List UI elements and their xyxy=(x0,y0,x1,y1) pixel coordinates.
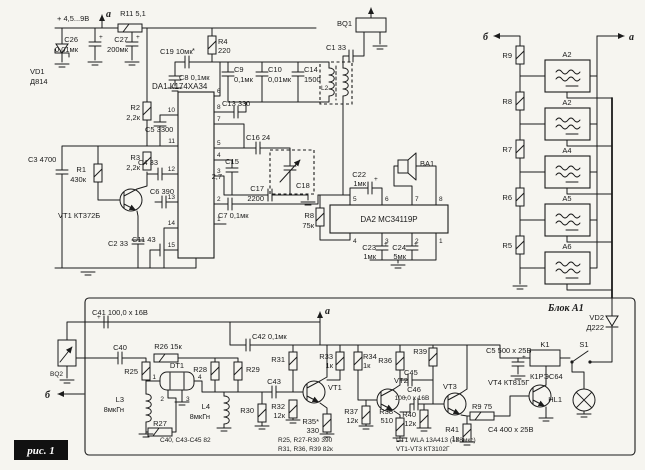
c45-label: C45 xyxy=(404,368,418,377)
r30-label: R30 xyxy=(240,406,254,415)
r32-label: R32 xyxy=(271,402,285,411)
c5-label: C5 3300 xyxy=(145,125,173,134)
r9-block-label: R9 75 xyxy=(472,402,492,411)
c17-label: C17 xyxy=(250,184,264,193)
c18-label: C18 xyxy=(296,181,310,190)
c23-label: C23 xyxy=(362,243,376,252)
c41-plus: + xyxy=(97,314,101,321)
vd1-value: Д814 xyxy=(30,77,48,86)
figure-caption: рис. 1 xyxy=(14,440,68,460)
r9-filter-label: R9 xyxy=(502,51,512,60)
l3-value: 8мкГн xyxy=(104,405,124,414)
note-res2: R31, R36, R39 82к xyxy=(278,446,333,453)
c46-label: C46 xyxy=(407,385,421,394)
filter-unit-a2b xyxy=(545,108,590,140)
bq2-label: BQ2 xyxy=(50,371,63,378)
c27-label: C27 xyxy=(114,35,128,44)
c14-value: 1500 xyxy=(304,75,321,84)
c9-value: 0,1мк xyxy=(234,75,254,84)
c16-label: C16 24 xyxy=(246,133,270,142)
da1-pin4: 4 xyxy=(217,152,221,159)
dt1-label: DT1 xyxy=(170,361,184,370)
r34-label: R34 xyxy=(363,352,377,361)
ba1-speaker-icon xyxy=(398,160,408,173)
c22-label: C22 xyxy=(352,170,366,179)
r25-label: R25 xyxy=(124,367,138,376)
vd2-value: Д222 xyxy=(586,323,604,332)
da2-pin5: 5 xyxy=(353,196,357,203)
r2-value: 2,2к xyxy=(126,113,140,122)
c3-label: C3 4700 xyxy=(28,155,56,164)
conn-a-label: а xyxy=(629,32,634,43)
c10-label: C10 xyxy=(268,65,282,74)
r37-label: R37 xyxy=(344,407,358,416)
r38-value: 510 xyxy=(380,416,393,425)
hl1-label: HL1 xyxy=(548,395,562,404)
l3-label: L3 xyxy=(116,395,124,404)
c15-label: C15 xyxy=(225,157,239,166)
da2-pin6: 6 xyxy=(385,196,389,203)
r32-value: 12к xyxy=(273,411,285,420)
c42-label: C42 0,1мк xyxy=(252,332,287,341)
r35-value: 330 xyxy=(306,426,319,435)
da1-pin5: 5 xyxy=(217,140,221,147)
da1-chip xyxy=(178,92,214,258)
c27-value: 200мк xyxy=(107,45,129,54)
c22-plus: + xyxy=(374,176,378,183)
k1-relay-icon xyxy=(530,350,560,366)
r5-filter-label: R5 xyxy=(502,241,512,250)
dt1-delay-line xyxy=(160,372,194,390)
caption-text: рис. 1 xyxy=(26,445,55,457)
da1-pin8: 8 xyxy=(217,104,221,111)
r37-value: 12к xyxy=(346,416,358,425)
r35-label: R35* xyxy=(302,417,319,426)
supply-label: + 4,5...9В xyxy=(57,14,89,23)
da1-pin7: 7 xyxy=(217,116,221,123)
filter-unit-a2 xyxy=(545,60,590,92)
l2-label: L2 xyxy=(321,85,329,92)
c4-label: C4 33 xyxy=(138,158,158,167)
relay-type-label: К1РЭС64 xyxy=(530,372,563,381)
da2-title: DA2 MC34119P xyxy=(360,215,417,224)
c5-plus: + xyxy=(522,354,526,361)
r8-filter-label: R8 xyxy=(502,97,512,106)
da1-pin2: 2 xyxy=(217,196,221,203)
r4-label: R4 xyxy=(218,37,228,46)
schematic-canvas: + 4,5...9В а R11 5,1 C26 0,01мк + C27 20… xyxy=(0,0,645,470)
dt1-pin1: 1 xyxy=(152,374,156,381)
vt1-block-label: VT1 xyxy=(328,383,342,392)
dt1-pin3: 3 xyxy=(186,396,190,403)
da2-pin7: 7 xyxy=(415,196,419,203)
l4-value: 8мкГн xyxy=(190,412,210,421)
r1-value: 430к xyxy=(70,175,87,184)
da1-title: DA1 К174ХА34 xyxy=(152,82,208,91)
r2-label: R2 xyxy=(130,103,140,112)
l4-label: L4 xyxy=(202,402,210,411)
c10-value: 0,01мк xyxy=(268,75,292,84)
r26-label: R26 15к xyxy=(154,342,182,351)
note-dt1: DT1 WLA 13A413 (128мкс) xyxy=(396,437,476,444)
filter-unit-a4 xyxy=(545,156,590,188)
vt2-label: VT2 xyxy=(394,376,408,385)
c13-label: C13 330 xyxy=(222,99,250,108)
filter-unit-a6 xyxy=(545,252,590,284)
c19-label: C19 10мк xyxy=(160,47,193,56)
da1-pin11: 11 xyxy=(168,138,175,145)
r6-filter-label: R6 xyxy=(502,193,512,202)
vt1-transistor xyxy=(120,189,142,211)
c11-label: C11 43 xyxy=(132,235,156,244)
vd2-diode-icon xyxy=(606,316,618,326)
c7-label: C7 0,1мк xyxy=(218,211,249,220)
r34-value: 1к xyxy=(363,361,371,370)
labels-top: + 4,5...9В а R11 5,1 C26 0,01мк + C27 20… xyxy=(28,9,443,261)
r28-label: R28 xyxy=(193,365,207,374)
hl1-lamp-icon xyxy=(573,389,595,411)
r29-label: R29 xyxy=(246,365,260,374)
filter-bank xyxy=(494,36,624,298)
vd1-label: VD1 xyxy=(30,67,45,76)
vt1-label: VT1 КТ372Б xyxy=(58,211,100,220)
r36-label: R36 xyxy=(378,356,392,365)
r41-label: R41 xyxy=(445,425,459,434)
da1-pin10: 10 xyxy=(168,107,176,114)
conn-a-top: а xyxy=(106,9,111,20)
c46-value: 100,0 x 16В xyxy=(395,395,430,402)
r31-label: R31 xyxy=(271,355,285,364)
r40-label: R40 xyxy=(402,410,416,419)
c2-label: C2 33 xyxy=(108,239,128,248)
c17-value: 2200 xyxy=(247,194,264,203)
c23-value: 1мк xyxy=(363,252,376,261)
vt3-transistor xyxy=(444,393,466,415)
bq1-earphone-icon xyxy=(356,18,386,32)
r8-top-value: 75к xyxy=(302,221,314,230)
s1-switch-blade-icon xyxy=(572,351,588,362)
a2b-label: А2 xyxy=(562,98,571,107)
c24-value: 5мк xyxy=(393,252,406,261)
r39-label: R39 xyxy=(413,347,427,356)
da1-pin6: 6 xyxy=(217,88,221,95)
s1-label: S1 xyxy=(579,340,588,349)
bq1-label: BQ1 xyxy=(337,19,352,28)
c26-value: 0,01мк xyxy=(55,45,79,54)
r27-label: R27 xyxy=(153,419,167,428)
vt1-block-transistor xyxy=(303,381,325,403)
vd2-label: VD2 xyxy=(589,313,604,322)
a5-label: А5 xyxy=(562,194,571,203)
c46-plus: + xyxy=(403,395,407,402)
note-res1: R25, R27-R30 390 xyxy=(278,437,333,444)
c6-label: C6 390 xyxy=(150,187,174,196)
conn-a-block-label: а xyxy=(325,306,330,317)
vt4-label: VT4 КТ815Г xyxy=(488,378,529,387)
conn-b-label: б xyxy=(483,32,489,43)
c9-label: C9 xyxy=(234,65,244,74)
bq2-mic-icon xyxy=(58,340,76,366)
c26-label: C26 xyxy=(64,35,78,44)
c24-label: C24 xyxy=(392,243,406,252)
c19-star: * xyxy=(192,46,195,55)
da2-pin1: 1 xyxy=(439,238,443,245)
r33-label: R33 xyxy=(319,352,333,361)
k1-label: K1 xyxy=(540,340,549,349)
a2-label: А2 xyxy=(562,50,571,59)
da2-pin8: 8 xyxy=(439,196,443,203)
a4-label: А4 xyxy=(562,146,571,155)
note-caps: C40, C43-C45 82 xyxy=(160,437,211,444)
da2-pin4: 4 xyxy=(353,238,357,245)
a6-label: А6 xyxy=(562,242,571,251)
c23-plus: + xyxy=(384,241,388,248)
filter-unit-a5 xyxy=(545,204,590,236)
vt3-label: VT3 xyxy=(443,382,457,391)
c24-plus: + xyxy=(414,241,418,248)
r4-value: 220 xyxy=(218,46,231,55)
block-a1-title: Блок А1 xyxy=(547,303,584,314)
conn-b-bottom-label: б xyxy=(45,390,51,401)
r1-label: R1 xyxy=(76,165,86,174)
c14-label: C14 xyxy=(304,65,318,74)
schematic-page: + 4,5...9В а R11 5,1 C26 0,01мк + C27 20… xyxy=(0,0,645,470)
c22-value: 1мк xyxy=(353,179,366,188)
c4-block-label: C4 400 x 25В xyxy=(488,425,533,434)
ba1-label: BA1 xyxy=(420,159,434,168)
r40-value: 12к xyxy=(404,419,416,428)
r33-value: 1к xyxy=(326,361,334,370)
dt1-pin4: 4 xyxy=(198,374,202,381)
r38-label: R38 xyxy=(379,407,393,416)
r8-top-label: R8 xyxy=(304,211,314,220)
c40-label: C40 xyxy=(113,343,127,352)
dt1-pin2: 2 xyxy=(160,396,164,403)
c15-value: 2,7 xyxy=(212,172,222,181)
c43-label: C43 xyxy=(267,377,281,386)
r7-filter-label: R7 xyxy=(502,145,512,154)
c8-label: C8 0,1мк xyxy=(179,73,210,82)
c27-plus: + xyxy=(136,34,140,41)
c1-label: C1 33 xyxy=(326,43,346,52)
r11-label: R11 5,1 xyxy=(120,9,146,18)
da1-pin14: 14 xyxy=(168,220,176,227)
da1-pin12: 12 xyxy=(168,166,176,173)
note-vt: VT1-VT3 КТ3102Г xyxy=(396,446,450,453)
c26-plus: + xyxy=(99,34,103,41)
da1-pin15: 15 xyxy=(168,242,176,249)
